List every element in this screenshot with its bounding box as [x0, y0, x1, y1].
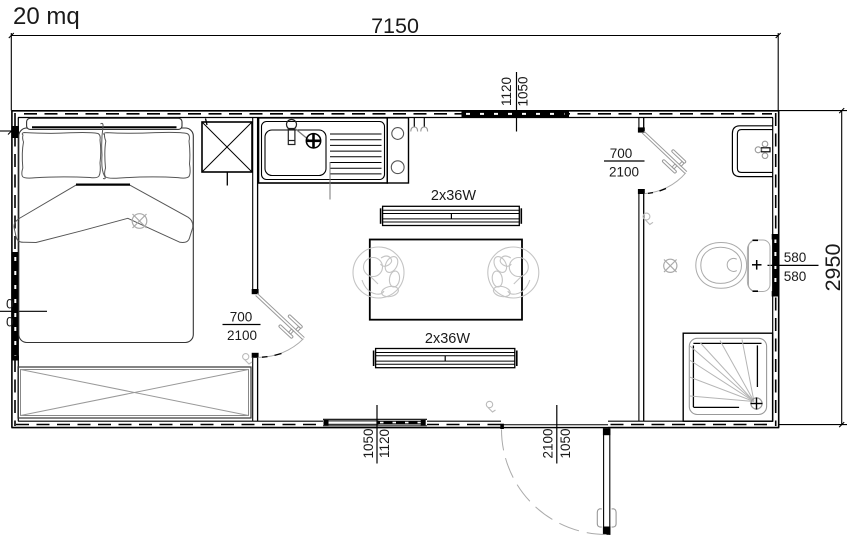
svg-text:1050: 1050	[558, 428, 573, 458]
svg-text:2100: 2100	[227, 328, 257, 343]
svg-text:0: 0	[6, 315, 14, 330]
svg-text:1120: 1120	[499, 77, 514, 106]
svg-text:2100: 2100	[540, 428, 555, 458]
svg-text:2x36W: 2x36W	[431, 188, 476, 204]
svg-text:2x36W: 2x36W	[425, 331, 470, 347]
svg-text:1050: 1050	[361, 428, 376, 458]
svg-text:700: 700	[610, 146, 633, 161]
svg-text:2950: 2950	[821, 244, 845, 292]
svg-text:0: 0	[6, 297, 14, 312]
svg-text:1050: 1050	[516, 76, 531, 106]
svg-text:1120: 1120	[377, 429, 392, 458]
svg-text:20 mq: 20 mq	[13, 3, 80, 30]
svg-text:580: 580	[784, 269, 807, 284]
svg-text:700: 700	[230, 310, 253, 325]
svg-text:580: 580	[784, 250, 807, 265]
svg-text:7150: 7150	[371, 14, 419, 38]
svg-text:2100: 2100	[609, 165, 639, 180]
